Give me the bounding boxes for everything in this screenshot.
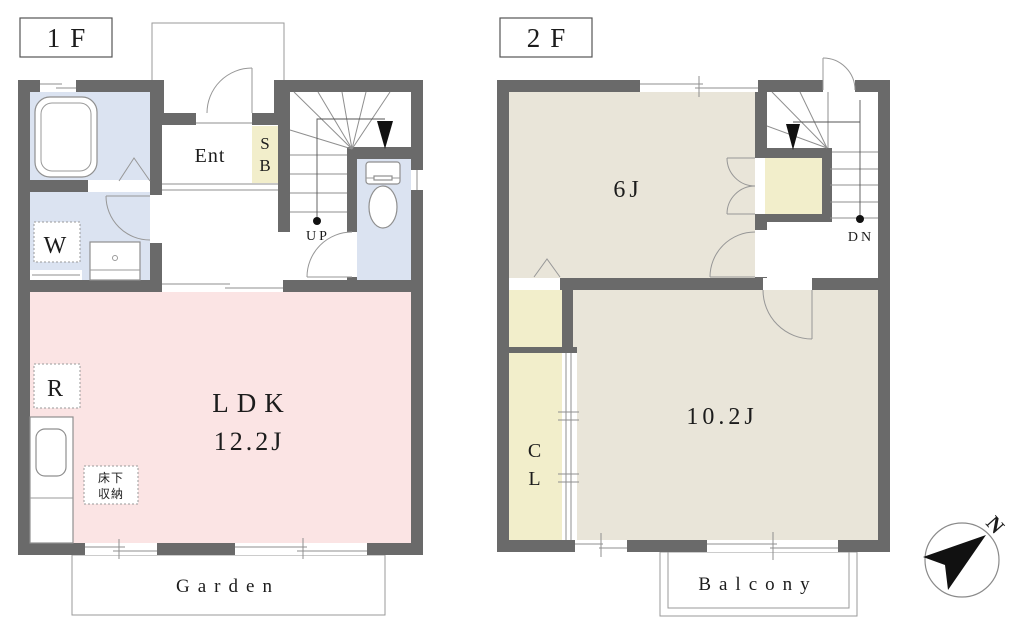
stairwell-exterior-door <box>823 58 855 92</box>
balcony-label: Balcony <box>698 574 817 595</box>
floor1-tag-label: 1F <box>47 23 96 53</box>
compass: N <box>923 511 1009 597</box>
closet-line2: L <box>528 468 541 490</box>
ldk-size-label: 12.2J <box>214 427 285 456</box>
closet-line1: C <box>528 440 542 462</box>
stair-up-arrow <box>377 121 393 149</box>
underfloor-storage-line1: 床下 <box>98 471 124 485</box>
floor2-tag: 2F <box>500 18 592 57</box>
porch <box>152 23 284 116</box>
ldk-label: LDK <box>212 388 292 418</box>
floor2-plan: Balcony <box>497 18 890 616</box>
floorplan-canvas: Garden <box>0 0 1024 632</box>
underfloor-storage: 床下 収納 <box>84 466 138 504</box>
floor1-tag: 1F <box>20 18 112 57</box>
toilet-fixture <box>366 162 400 228</box>
room-6j-label: 6J <box>613 177 642 203</box>
stair-down-start-dot <box>856 215 864 223</box>
room-10j-label: 10.2J <box>686 404 757 430</box>
stairs-down-label: DN <box>848 230 874 245</box>
shoe-box-line1: S <box>260 134 269 153</box>
refrigerator-label: R <box>47 376 67 402</box>
stair-closet-floor <box>765 158 822 214</box>
bathtub <box>35 97 97 177</box>
refrigerator-space: R <box>34 364 80 408</box>
garden-label: Garden <box>176 576 280 597</box>
floor2-tag-label: 2F <box>527 23 576 53</box>
underfloor-storage-line2: 収納 <box>98 487 124 501</box>
compass-north-label: N <box>981 511 1009 538</box>
floor1-plan: Garden <box>18 18 423 615</box>
stairs-up-label: UP <box>306 229 330 244</box>
stair-up-start-dot <box>313 217 321 225</box>
entrance-step <box>162 184 278 190</box>
small-closet-floor <box>509 290 562 347</box>
entrance-label: Ent <box>195 145 226 167</box>
bathroom-window <box>40 80 76 92</box>
washer-space: W <box>34 222 80 262</box>
kitchen-sink <box>36 429 66 476</box>
kitchen-counter <box>30 417 73 543</box>
balcony-area: Balcony <box>660 552 857 616</box>
washer-label: W <box>44 233 71 259</box>
washroom-small-window <box>30 270 82 280</box>
floorplan-svg: Garden <box>0 0 1024 632</box>
shoe-box-line2: B <box>259 156 270 175</box>
garden-area: Garden <box>72 555 385 615</box>
hall-ldk-sliding-door <box>162 280 283 292</box>
washbasin <box>90 242 140 280</box>
toilet-slit-window <box>411 170 423 190</box>
